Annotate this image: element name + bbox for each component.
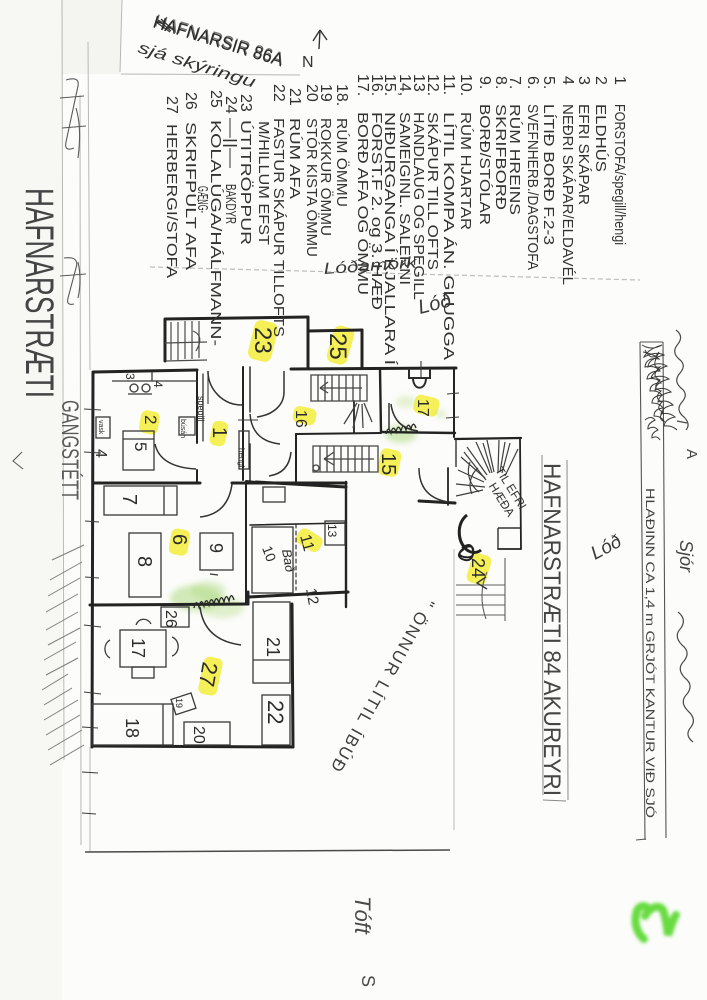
svg-text:2: 2 (592, 76, 609, 85)
svg-text:M/HILLUM EFST: M/HILLUM EFST (255, 121, 272, 245)
svg-text:SKRIFBORÐ: SKRIFBORÐ (492, 104, 509, 210)
svg-text:STÓR KISTA ÖMMU: STÓR KISTA ÖMMU (303, 118, 321, 257)
svg-text:SKRIFPÚLT AFA: SKRIFPÚLT AFA (182, 122, 199, 270)
svg-text:12: 12 (302, 587, 322, 606)
svg-text:RÚM AFA: RÚM AFA (286, 118, 303, 199)
svg-text:4: 4 (151, 381, 165, 388)
svg-text:4: 4 (559, 76, 576, 85)
svg-text:HAFNARSTRÆTI: HAFNARSTRÆTI (17, 188, 61, 398)
svg-text:A: A (683, 449, 700, 459)
svg-text:4: 4 (92, 449, 109, 458)
svg-text:24: 24 (468, 558, 488, 578)
svg-text:21: 21 (263, 637, 283, 657)
svg-text:27: 27 (163, 96, 180, 114)
svg-text:1: 1 (208, 427, 230, 438)
svg-text:búsáh: búsáh (179, 419, 186, 438)
svg-text:18.: 18. (333, 84, 350, 106)
svg-text:27: 27 (194, 660, 223, 688)
svg-text:RÚM HJARTAR: RÚM HJARTAR (457, 112, 474, 230)
svg-text:17: 17 (414, 399, 431, 417)
svg-text:8: 8 (133, 556, 155, 567)
svg-text:EFRI SKÁPAR: EFRI SKÁPAR (575, 104, 592, 205)
svg-text:hengi: hengi (237, 448, 246, 468)
svg-text:11.: 11. (440, 74, 457, 95)
svg-text:HLAÐINN CA 1,4 m GRJÓT KANTUR: HLAÐINN CA 1,4 m GRJÓT KANTUR VIÐ SJÓ (643, 488, 658, 818)
svg-text:NEÐRI SKÁPAR/ELDAVÉL: NEÐRI SKÁPAR/ELDAVÉL (559, 104, 576, 285)
svg-text:25: 25 (324, 333, 351, 360)
svg-text:5: 5 (131, 442, 150, 451)
svg-text:18: 18 (122, 718, 142, 738)
svg-text:9: 9 (206, 543, 226, 553)
svg-text:RÚM ÖMMU: RÚM ÖMMU (333, 118, 351, 207)
svg-text:26: 26 (162, 610, 179, 628)
svg-text:22: 22 (263, 700, 288, 724)
svg-text:HERBERGI/STOFA: HERBERGI/STOFA (163, 124, 180, 278)
svg-text:1: 1 (611, 76, 628, 85)
svg-text:20: 20 (190, 726, 207, 744)
svg-text:19: 19 (174, 698, 184, 708)
svg-text:Tóft: Tóft (350, 896, 375, 935)
svg-text:S: S (358, 975, 378, 987)
svg-text:26: 26 (182, 92, 199, 110)
svg-text:17: 17 (128, 638, 148, 658)
svg-text:13: 13 (325, 524, 339, 538)
svg-text:25: 25 (207, 90, 224, 108)
svg-text:LÍTIÐ BORÐ F.2-3: LÍTIÐ BORÐ F.2-3 (540, 104, 557, 245)
svg-text:FORSTOFA/spegill/hengi: FORSTOFA/spegill/hengi (611, 104, 628, 245)
svg-text:21: 21 (286, 88, 303, 106)
svg-text:23: 23 (249, 327, 276, 354)
svg-text:KOLALÚGA/HÁLFMANN-: KOLALÚGA/HÁLFMANN- (207, 120, 224, 346)
svg-text:17.: 17. (354, 74, 371, 96)
svg-text:10.: 10. (457, 74, 474, 96)
svg-text:15: 15 (377, 453, 399, 475)
svg-text:20: 20 (303, 84, 320, 102)
svg-text:3: 3 (123, 373, 137, 380)
svg-text:LÍTIL KOMPA ÁN. GLUGGA: LÍTIL KOMPA ÁN. GLUGGA (440, 112, 457, 360)
svg-text:16: 16 (292, 410, 309, 428)
svg-text:2: 2 (141, 415, 160, 424)
svg-text:spegill: spegill (196, 396, 206, 422)
svg-text:Sjór: Sjór (676, 540, 696, 573)
svg-text:22: 22 (270, 84, 287, 102)
svg-text:vask: vask (97, 420, 104, 435)
svg-text:HAFNARSTRÆTI 84 AKUREYRI: HAFNARSTRÆTI 84 AKUREYRI (538, 463, 565, 796)
svg-text:5.: 5. (540, 76, 557, 89)
svg-text:3: 3 (575, 76, 592, 85)
svg-text:GANGSTÉTT: GANGSTÉTT (56, 400, 83, 500)
svg-text:8.: 8. (492, 76, 509, 89)
svg-text:ELDHÚS: ELDHÚS (592, 104, 609, 172)
svg-text:9.: 9. (476, 76, 493, 89)
svg-text:6.: 6. (524, 76, 541, 89)
svg-text:SVEFNHERB./DAGSTOFA: SVEFNHERB./DAGSTOFA (524, 104, 541, 270)
svg-text:N: N (302, 54, 314, 71)
svg-text:6: 6 (168, 534, 190, 545)
svg-text:BORÐ/STÓLAR: BORÐ/STÓLAR (476, 104, 493, 225)
svg-text:7: 7 (118, 494, 140, 505)
